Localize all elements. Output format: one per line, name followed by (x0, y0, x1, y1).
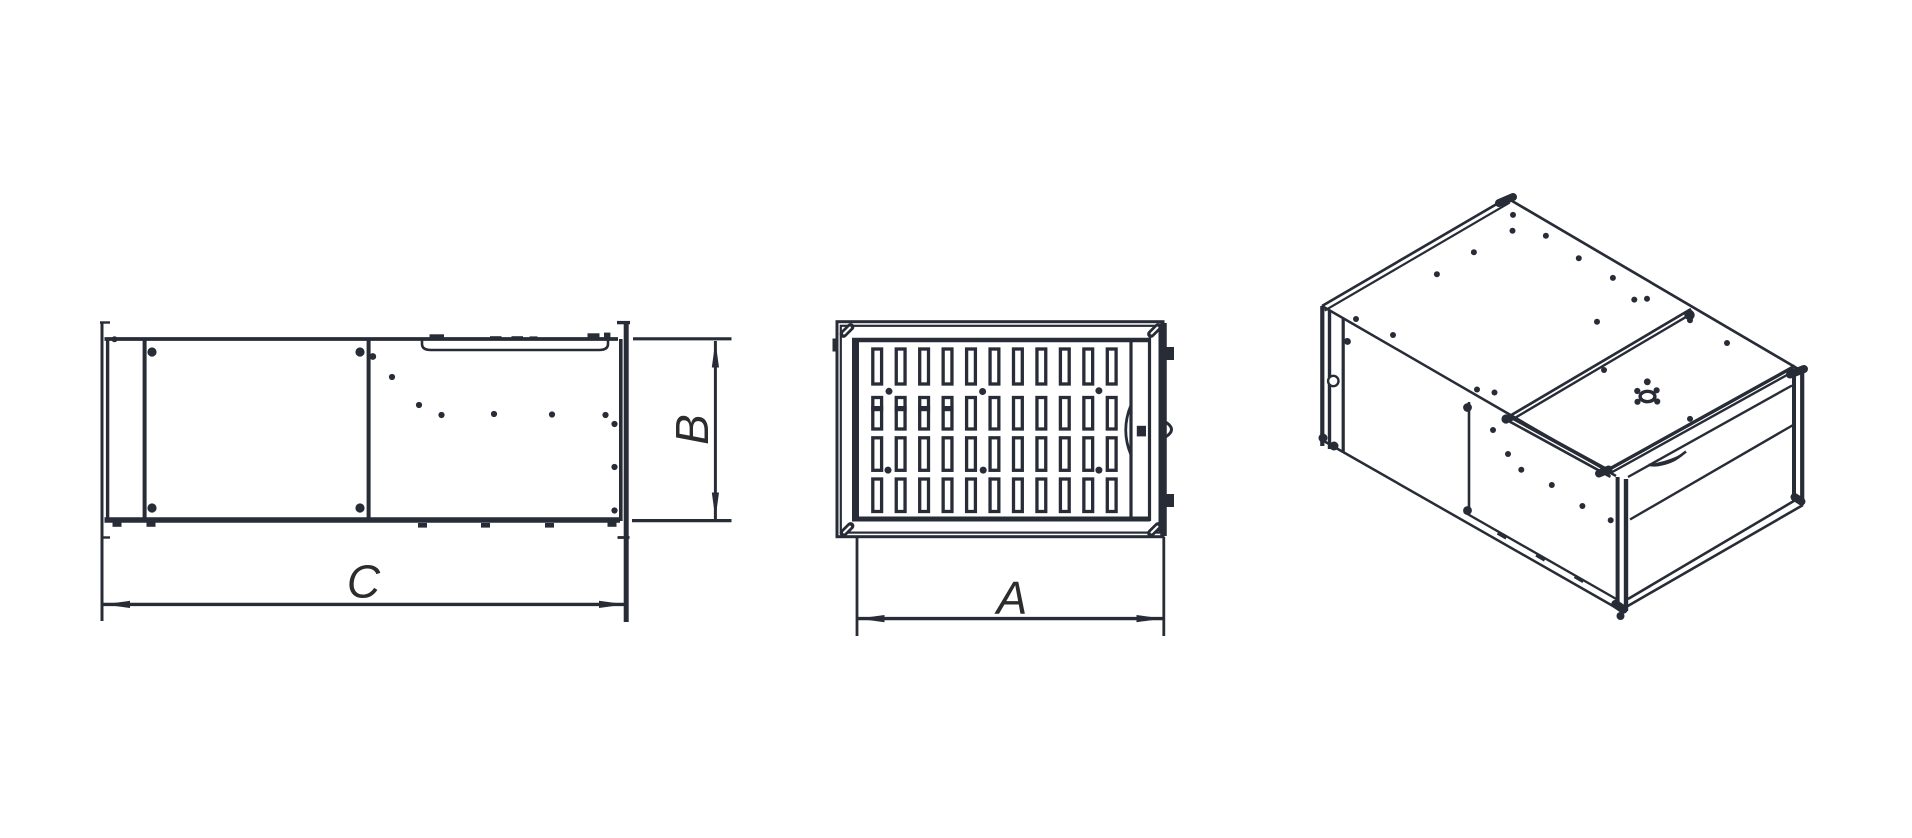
svg-text:C: C (347, 556, 381, 608)
svg-text:B: B (666, 414, 718, 445)
svg-text:A: A (994, 572, 1028, 624)
